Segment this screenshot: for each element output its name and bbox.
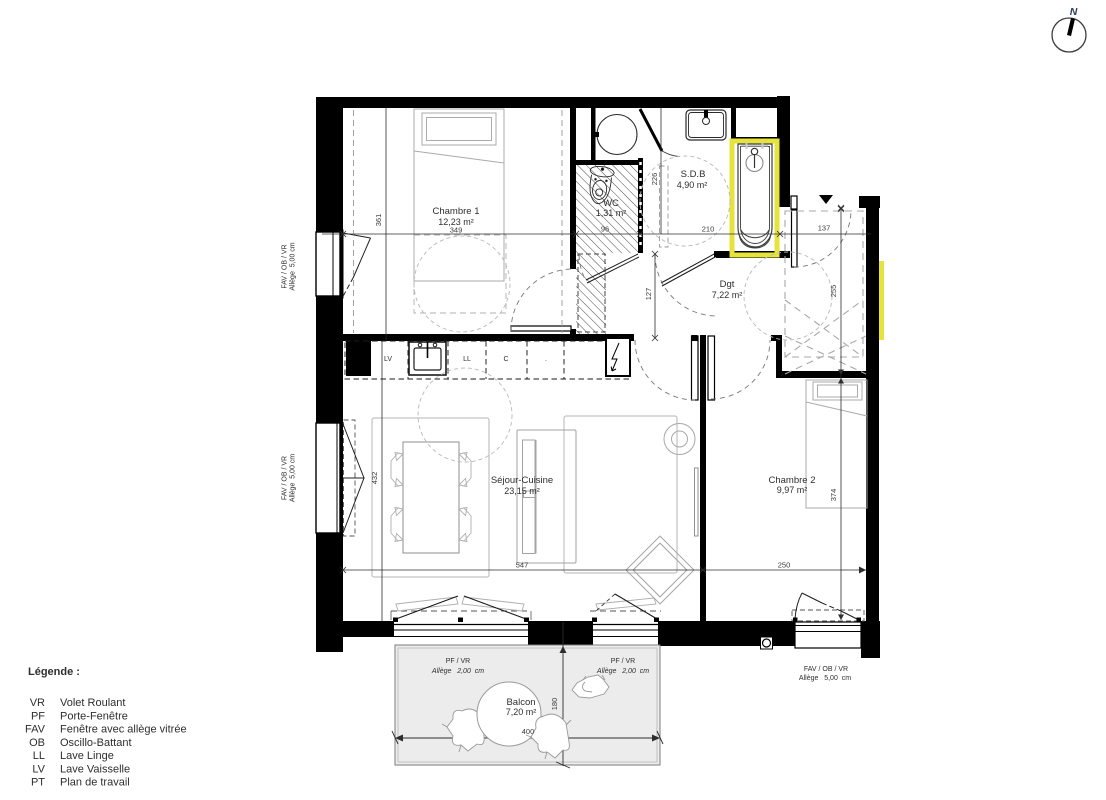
svg-text:127: 127 <box>644 288 653 301</box>
svg-text:Volet Roulant: Volet Roulant <box>60 697 125 709</box>
svg-text:FAV / OB / VR: FAV / OB / VR <box>804 666 848 673</box>
svg-text:PF / VR: PF / VR <box>446 658 471 665</box>
svg-text:OB: OB <box>29 737 45 749</box>
svg-text:210: 210 <box>702 225 715 234</box>
svg-text:4,90 m²: 4,90 m² <box>677 180 708 190</box>
svg-text:255: 255 <box>829 285 838 298</box>
svg-text:180: 180 <box>550 698 559 711</box>
svg-text:Lave Vaisselle: Lave Vaisselle <box>60 763 130 775</box>
svg-text:Allège 2,00 cm: Allège 2,00 cm <box>431 668 484 675</box>
svg-text:LL: LL <box>463 356 471 363</box>
svg-text:Dgt: Dgt <box>720 279 735 290</box>
svg-text:Oscillo-Battant: Oscillo-Battant <box>60 737 132 749</box>
svg-text:Plan de travail: Plan de travail <box>60 777 130 789</box>
svg-text:Lave Linge: Lave Linge <box>60 750 114 762</box>
svg-text:Porte-Fenêtre: Porte-Fenêtre <box>60 710 128 722</box>
svg-text:23,15 m²: 23,15 m² <box>504 486 540 496</box>
svg-text:Chambre 1: Chambre 1 <box>433 206 480 217</box>
svg-text:96: 96 <box>601 225 609 234</box>
svg-text:374: 374 <box>829 489 838 502</box>
svg-text:VR: VR <box>30 697 45 709</box>
svg-text:250: 250 <box>778 561 791 570</box>
svg-text:FAV: FAV <box>25 724 46 736</box>
svg-text:PT: PT <box>31 777 45 789</box>
svg-text:Allège 2,00 cm: Allège 2,00 cm <box>596 668 649 675</box>
svg-text:Fenêtre avec allège vitrée: Fenêtre avec allège vitrée <box>60 724 187 736</box>
svg-text:LV: LV <box>384 356 392 363</box>
svg-text:226: 226 <box>650 173 659 186</box>
svg-text:.: . <box>545 356 547 363</box>
svg-text:S.D.B: S.D.B <box>681 169 706 180</box>
svg-text:7,22 m²: 7,22 m² <box>712 290 743 300</box>
svg-text:400: 400 <box>522 727 535 736</box>
svg-text:Séjour-Cuisine: Séjour-Cuisine <box>491 475 553 486</box>
svg-text:349: 349 <box>450 226 463 235</box>
svg-text:FAV / OB / VR: FAV / OB / VR <box>282 244 289 288</box>
svg-text:LV: LV <box>32 763 45 775</box>
svg-text:361: 361 <box>374 214 383 227</box>
svg-text:Allège 5,00 cm: Allège 5,00 cm <box>290 242 297 290</box>
svg-text:137: 137 <box>818 224 831 233</box>
svg-text:547: 547 <box>516 561 529 570</box>
svg-text:7,20 m²: 7,20 m² <box>506 707 537 717</box>
svg-text:FAV / OB / VR: FAV / OB / VR <box>282 456 289 500</box>
svg-text:Allège 5,00 cm: Allège 5,00 cm <box>290 454 297 502</box>
svg-text:PF / VR: PF / VR <box>611 658 636 665</box>
svg-text:LL: LL <box>33 750 45 762</box>
svg-text:PF: PF <box>31 710 45 722</box>
svg-text:Légende :: Légende : <box>28 666 80 678</box>
svg-text:432: 432 <box>370 472 379 485</box>
svg-text:N: N <box>1070 6 1078 18</box>
svg-text:1,31 m²: 1,31 m² <box>596 208 627 218</box>
svg-text:Allège 5,00 cm: Allège 5,00 cm <box>799 675 851 682</box>
svg-text:9,97 m²: 9,97 m² <box>777 485 808 495</box>
svg-text:C: C <box>503 356 508 363</box>
